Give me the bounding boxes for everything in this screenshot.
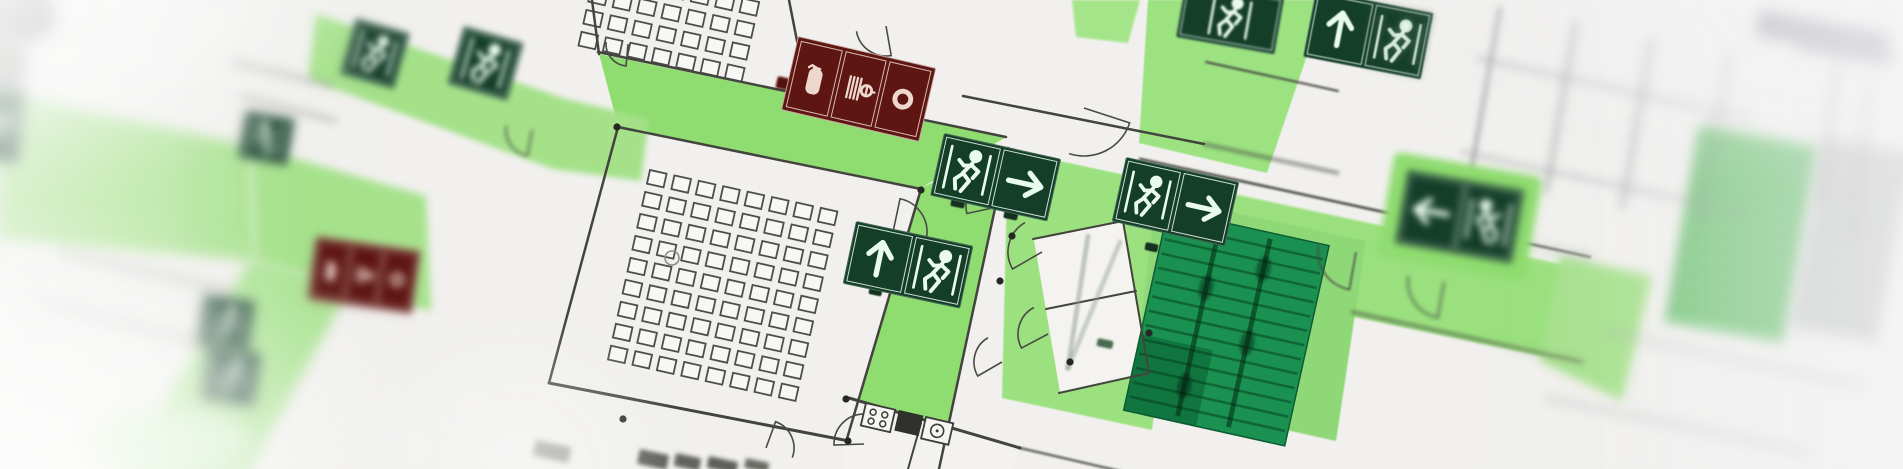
man-right-icon <box>903 237 969 305</box>
man-right-icon <box>200 297 252 349</box>
extinguisher-icon <box>312 241 350 301</box>
fire-equipment-sign <box>781 36 936 142</box>
ring-icon <box>378 250 416 310</box>
man-right-icon <box>1115 161 1180 231</box>
man-right-icon <box>204 349 258 403</box>
exit-sign <box>0 86 26 164</box>
exit-sign <box>1395 170 1524 263</box>
exit-sign <box>843 221 974 309</box>
safety-signs-layer <box>0 0 1903 469</box>
exit-sign <box>447 26 523 101</box>
exit-sign <box>1112 157 1240 247</box>
man-left-icon <box>1455 183 1520 259</box>
exit-sign <box>340 18 410 89</box>
evacuation-plan-photo <box>0 0 1903 469</box>
arrow-up-icon <box>846 225 912 293</box>
man-right-icon <box>1364 5 1430 76</box>
exit-sign <box>1176 0 1285 54</box>
arrow-left-icon <box>1399 173 1464 249</box>
fire-equipment-sign <box>307 236 421 314</box>
arrow-right-icon <box>1170 173 1235 243</box>
man-right-icon <box>1179 0 1281 51</box>
exit-sign <box>200 346 261 407</box>
man-right-icon <box>451 30 520 97</box>
hose-reel-icon <box>345 245 383 305</box>
arrow-right-icon <box>991 149 1058 218</box>
man-right-icon <box>0 89 22 160</box>
exit-sign <box>238 110 296 166</box>
man-left-icon <box>241 113 292 162</box>
man-right-icon <box>934 137 1001 206</box>
exit-sign <box>930 133 1061 221</box>
man-right-icon <box>344 22 406 86</box>
arrow-up-icon <box>1307 0 1373 65</box>
exit-sign <box>1303 0 1434 80</box>
exit-sign <box>197 294 256 353</box>
